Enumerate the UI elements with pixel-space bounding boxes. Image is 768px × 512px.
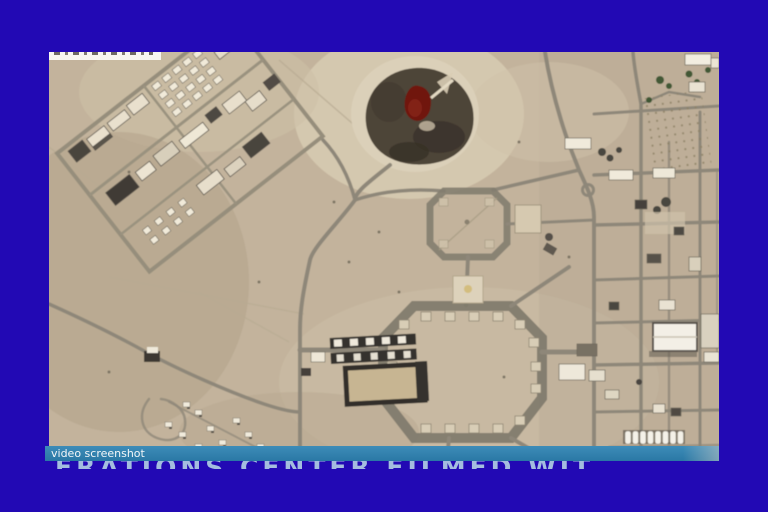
clipped-headline-text: ERATIONS CENTER FILMED WIT (55, 460, 735, 469)
satellite-image (49, 52, 719, 460)
video-caption-bar: video screenshot (45, 446, 719, 461)
clipped-label-strip (49, 52, 161, 60)
satellite-map-graphic (49, 52, 719, 460)
video-caption-text: video screenshot (51, 446, 719, 461)
clipped-headline: ERATIONS CENTER FILMED WIT (55, 460, 735, 469)
page-background: video screenshot ERATIONS CENTER FILMED … (0, 0, 768, 512)
